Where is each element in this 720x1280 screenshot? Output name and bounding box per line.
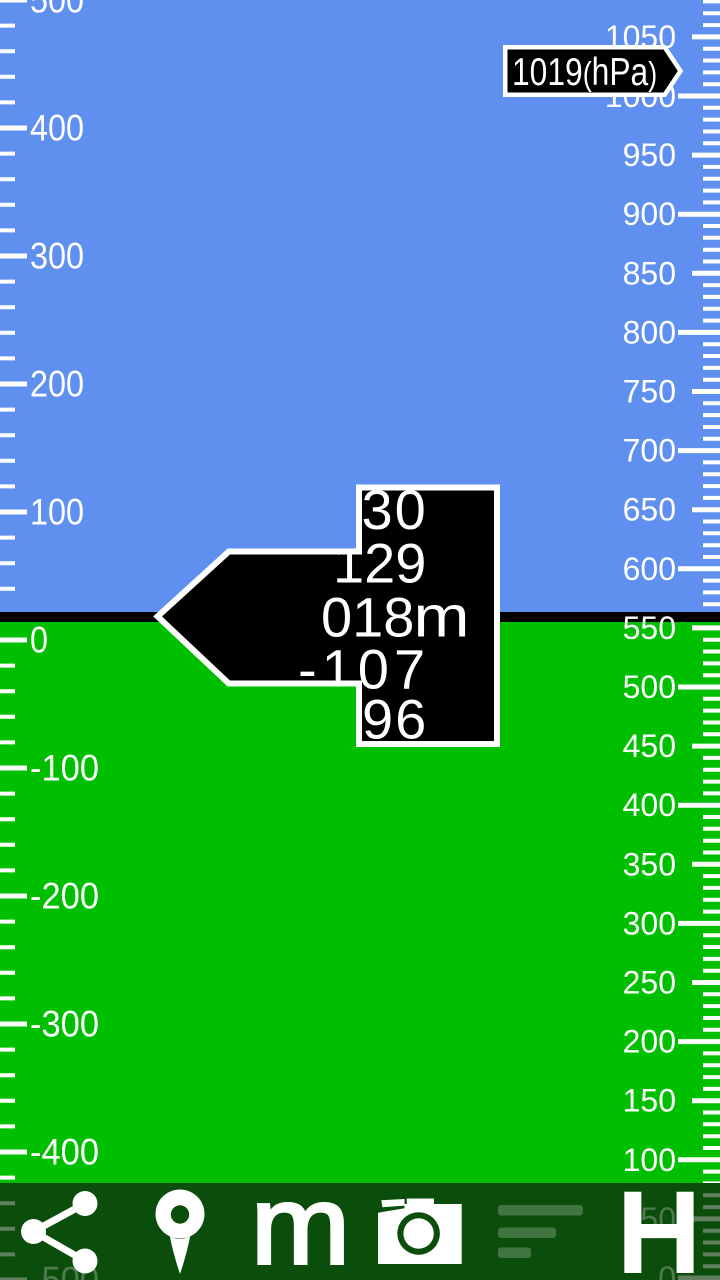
svg-text:250: 250 <box>623 965 676 1001</box>
svg-text:350: 350 <box>623 846 676 882</box>
svg-text:800: 800 <box>623 314 676 350</box>
svg-text:450: 450 <box>623 728 676 764</box>
svg-text:150: 150 <box>623 1083 676 1119</box>
svg-text:100: 100 <box>30 492 84 533</box>
svg-text:-400: -400 <box>30 1132 99 1173</box>
svg-text:300: 300 <box>30 236 84 277</box>
svg-text:550: 550 <box>623 610 676 646</box>
svg-text:900: 900 <box>623 196 676 232</box>
svg-text:650: 650 <box>623 492 676 528</box>
svg-text:m: m <box>251 1163 350 1280</box>
svg-text:300: 300 <box>623 905 676 941</box>
svg-text:700: 700 <box>623 433 676 469</box>
svg-text:-100: -100 <box>30 748 99 789</box>
svg-text:500: 500 <box>623 669 676 705</box>
svg-text:H: H <box>617 1166 702 1280</box>
svg-text:950: 950 <box>623 137 676 173</box>
svg-text:600: 600 <box>623 551 676 587</box>
svg-text:1019(hPa): 1019(hPa) <box>512 50 657 94</box>
svg-text:500: 500 <box>30 0 84 21</box>
svg-text:0: 0 <box>30 620 48 661</box>
svg-text:200: 200 <box>623 1024 676 1060</box>
svg-text:400: 400 <box>30 108 84 149</box>
svg-text:-200: -200 <box>30 876 99 917</box>
svg-text:400: 400 <box>623 787 676 823</box>
svg-text:850: 850 <box>623 255 676 291</box>
svg-text:750: 750 <box>623 374 676 410</box>
svg-text:200: 200 <box>30 364 84 405</box>
svg-text:-300: -300 <box>30 1004 99 1045</box>
